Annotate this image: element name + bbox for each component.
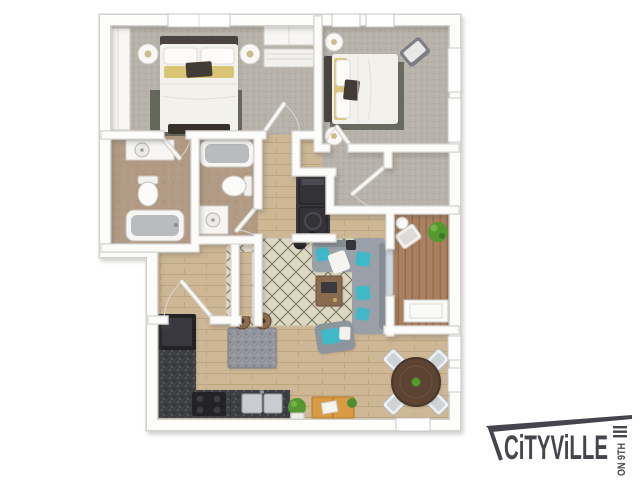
centerpiece-plant [412, 378, 421, 387]
headboard [324, 56, 333, 122]
toilet [138, 176, 158, 206]
faucet [260, 390, 264, 394]
bed-1 [160, 36, 238, 134]
dining-bottom-window [396, 418, 430, 431]
pillow [164, 48, 197, 64]
balcony-sliding-door [386, 245, 393, 300]
hallway-wood-floor [258, 135, 296, 220]
counter-left [158, 350, 196, 392]
bathtub [200, 140, 254, 167]
armchair-cushion [321, 328, 341, 345]
bathtub [126, 210, 184, 241]
table-lamp [331, 39, 337, 45]
table-lamp [145, 51, 152, 58]
teal-pillow [355, 285, 371, 301]
balcony-storage [404, 300, 448, 322]
dark-pillow [186, 61, 213, 78]
armchair [314, 320, 356, 355]
floor-plan-canvas: CiTYViLLE ON 9TH [0, 0, 640, 480]
bedroom2-window [332, 14, 360, 27]
bed-2 [324, 54, 398, 124]
laundry-closet [296, 172, 330, 238]
teal-pillow [355, 307, 370, 321]
bedroom2-window [366, 14, 394, 27]
brand-logo: CiTYViLLE ON 9TH [486, 415, 632, 476]
dining-table [392, 358, 440, 406]
table-lamp [331, 133, 337, 139]
teal-pillow [315, 247, 330, 262]
dining-window [448, 368, 461, 392]
teal-pillow [355, 251, 371, 267]
table-lamp [247, 51, 254, 58]
floor-plan-svg: CiTYViLLE ON 9TH [0, 0, 640, 480]
logo-brand-text: CiTYViLLE [504, 429, 608, 467]
coffee-table [316, 276, 342, 306]
sink-basin [242, 394, 262, 413]
dark-pillow [346, 240, 356, 250]
dark-pillow [343, 79, 360, 100]
logo-suffix-text: ON 9TH [616, 443, 628, 476]
sink-basin [264, 394, 282, 413]
bedroom2-side-window [448, 48, 461, 92]
small-plant [347, 398, 357, 408]
balcony-plant [428, 222, 448, 242]
logo-suffix-block: ON 9TH [613, 426, 628, 476]
dryer [299, 207, 327, 235]
dining-area [382, 348, 450, 416]
bedroom2-side-window [448, 98, 461, 142]
range [192, 392, 226, 416]
logo-slash [490, 428, 501, 460]
dining-window [448, 336, 461, 360]
moving-box [312, 397, 354, 418]
bedroom1-window [168, 14, 230, 27]
envelope [321, 401, 338, 414]
toilet [222, 176, 252, 196]
sliding-closet [264, 49, 314, 67]
